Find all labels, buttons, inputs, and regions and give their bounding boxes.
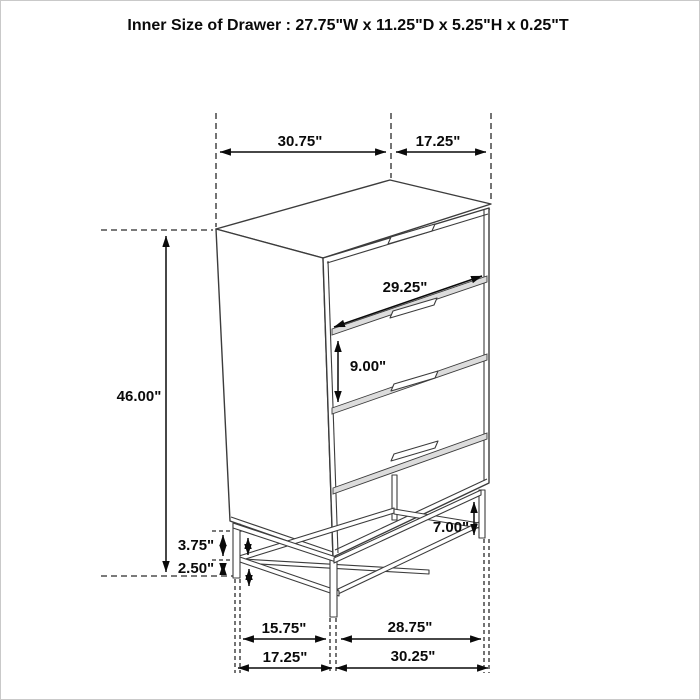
dim-base-outer-depth: 17.25"	[238, 649, 332, 668]
chest-dimension-diagram: Inner Size of Drawer : 27.75"W x 11.25"D…	[1, 1, 700, 700]
base-leg-right	[479, 490, 485, 538]
dim-top-width-label: 30.75"	[278, 133, 323, 150]
dim-top-depth: 17.25"	[396, 133, 486, 152]
dim-drawer-front-width-label: 29.25"	[383, 279, 428, 296]
base-leg-front-center	[330, 558, 337, 617]
dim-overall-height: 46.00"	[117, 236, 166, 572]
dim-base-inner-width-label: 28.75"	[388, 619, 433, 636]
side-panel	[216, 229, 333, 557]
dim-base-rail-gap-label: 3.75"	[178, 537, 214, 554]
furniture-dimension-page: Inner Size of Drawer : 27.75"W x 11.25"D…	[0, 0, 700, 700]
dim-base-outer-depth-label: 17.25"	[263, 649, 308, 666]
dim-drawer-front-height-label: 9.00"	[350, 358, 386, 375]
dim-base-inner-depth-label: 15.75"	[262, 620, 307, 637]
dim-top-width: 30.75"	[220, 133, 386, 152]
dim-base-outer-width-label: 30.25"	[391, 648, 436, 665]
dim-top-depth-label: 17.25"	[416, 133, 461, 150]
dim-base-inner-depth: 15.75"	[243, 620, 326, 639]
diagram-title: Inner Size of Drawer : 27.75"W x 11.25"D…	[127, 17, 568, 34]
base-leg-front-left	[233, 524, 240, 578]
dim-base-leg-height-label: 7.00"	[433, 519, 469, 536]
dim-base-inner-width: 28.75"	[341, 619, 481, 639]
dim-overall-height-label: 46.00"	[117, 388, 162, 405]
dim-base-floor-gap-label: 2.50"	[178, 560, 214, 577]
dim-base-outer-width: 30.25"	[336, 648, 488, 668]
